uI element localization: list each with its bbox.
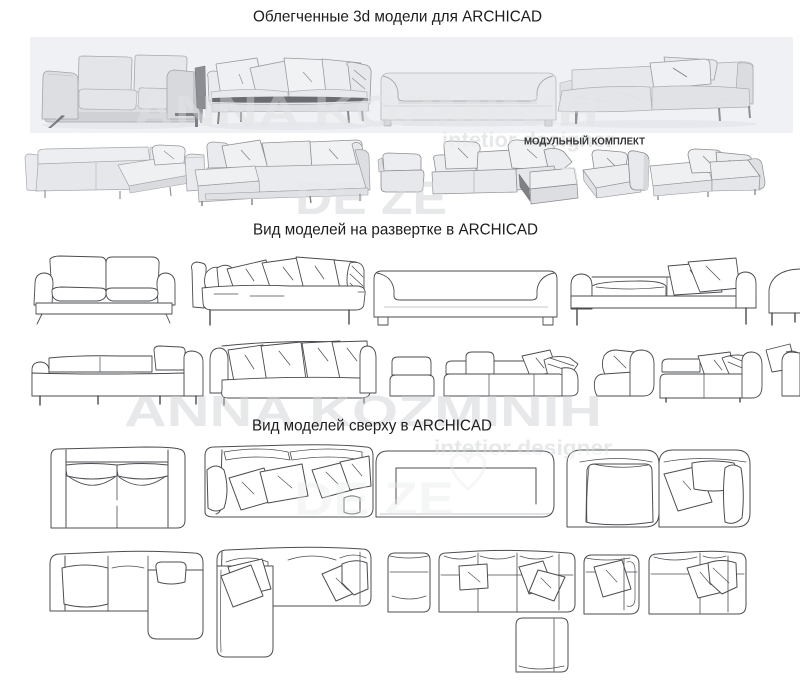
svg-text:Вид моделей на развертке в ARC: Вид моделей на развертке в ARCHICAD [253,222,538,239]
svg-text:Вид моделей сверху в ARCHICAD: Вид моделей сверху в ARCHICAD [252,418,492,435]
svg-text:DE ZE: DE ZE [294,472,454,525]
svg-text:intetior designer: intetior designer [434,437,612,460]
svg-text:МОДУЛЬНЫЙ КОМПЛЕКТ: МОДУЛЬНЫЙ КОМПЛЕКТ [524,135,646,148]
svg-text:DE ZE: DE ZE [295,171,447,224]
svg-text:Облегченные 3d модели для ARC: Облегченные 3d модели для ARCHICAD [253,9,542,26]
